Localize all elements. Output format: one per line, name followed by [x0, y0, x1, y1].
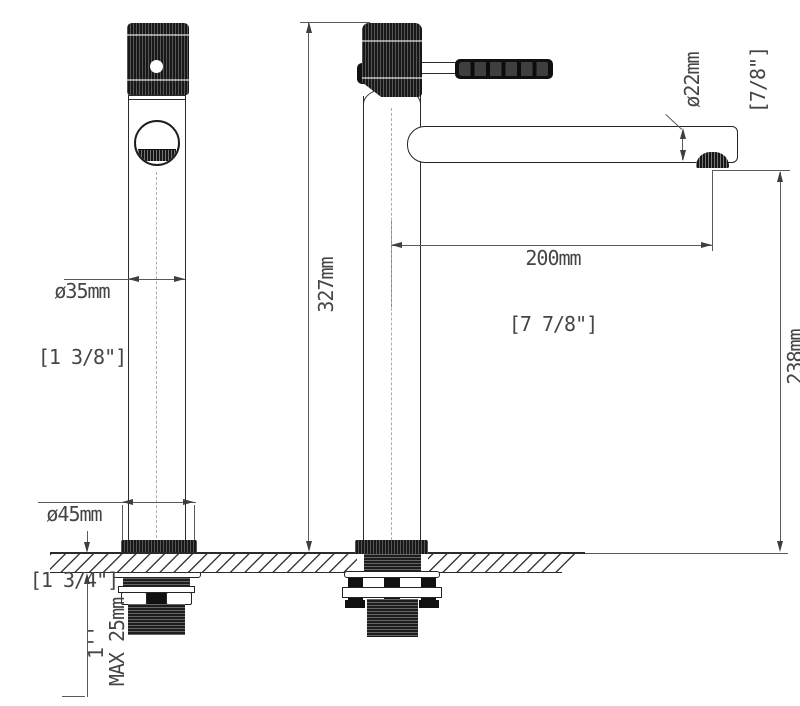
arrowhead — [391, 242, 402, 248]
dim-body-diameter-text: ø35mm [1 3/8"] — [22, 236, 142, 412]
front-knob — [127, 23, 189, 95]
side-knob-band — [362, 77, 422, 79]
side-knob-band — [362, 40, 422, 42]
text-underline — [62, 696, 85, 697]
side-body — [363, 96, 421, 554]
dim-body-diameter-line — [64, 279, 185, 280]
arrowhead — [128, 276, 139, 282]
dim-deck-line-lower — [87, 583, 88, 697]
arrowhead — [701, 242, 712, 248]
dim-spout-reach-text: 200mm [7 7/8"] — [478, 203, 628, 379]
countertop-extension-line — [585, 553, 788, 554]
dim-outlet-height-line — [780, 172, 781, 541]
dim-total-height-text: 327mm [12 7/8"] — [271, 228, 317, 342]
side-shank — [364, 554, 421, 572]
dim-base-diameter-line — [38, 502, 196, 503]
front-knob-band — [127, 79, 189, 81]
handle-stem — [420, 62, 457, 74]
front-knob-band — [127, 34, 189, 36]
thread-size-text: 1'' — [41, 627, 63, 659]
handle-grip-segments — [459, 62, 549, 76]
arrowhead — [122, 499, 133, 505]
arrowhead — [174, 276, 185, 282]
side-bracket-foot-right — [419, 600, 439, 608]
spout — [407, 126, 738, 163]
handle-grip — [455, 59, 553, 79]
arrowhead — [306, 541, 312, 552]
side-centerline — [391, 108, 392, 570]
dim-spout-reach-line — [391, 245, 712, 246]
side-base-ring — [355, 540, 428, 554]
front-body-seam — [129, 99, 185, 100]
side-threaded-rod — [367, 599, 418, 637]
dim-spout-diameter-text: ø22mm [7/8"] — [637, 43, 683, 117]
arrowhead — [777, 541, 783, 552]
arrowhead — [183, 499, 194, 505]
side-knob — [362, 23, 422, 97]
arrowhead — [84, 542, 90, 553]
technical-drawing-canvas: ø35mm [1 3/8"] ø45mm [1 3/4"] 327mm [12 … — [0, 0, 800, 706]
side-washer — [344, 571, 440, 578]
side-bracket-foot-left — [345, 600, 365, 608]
arrowhead — [306, 22, 312, 33]
arrowhead — [777, 171, 783, 182]
centerline-extension — [391, 221, 392, 307]
front-knob-hole — [150, 60, 163, 73]
arrowhead — [680, 128, 686, 139]
arrowhead — [680, 150, 686, 161]
extension-line — [122, 505, 123, 540]
extension-line — [712, 170, 713, 251]
dim-total-height-line — [308, 23, 309, 541]
extension-line — [194, 505, 195, 540]
side-mount-bar — [342, 587, 442, 598]
front-aerator-hatch — [138, 149, 176, 161]
front-outlet-circle — [134, 120, 180, 166]
front-centerline — [156, 172, 157, 538]
